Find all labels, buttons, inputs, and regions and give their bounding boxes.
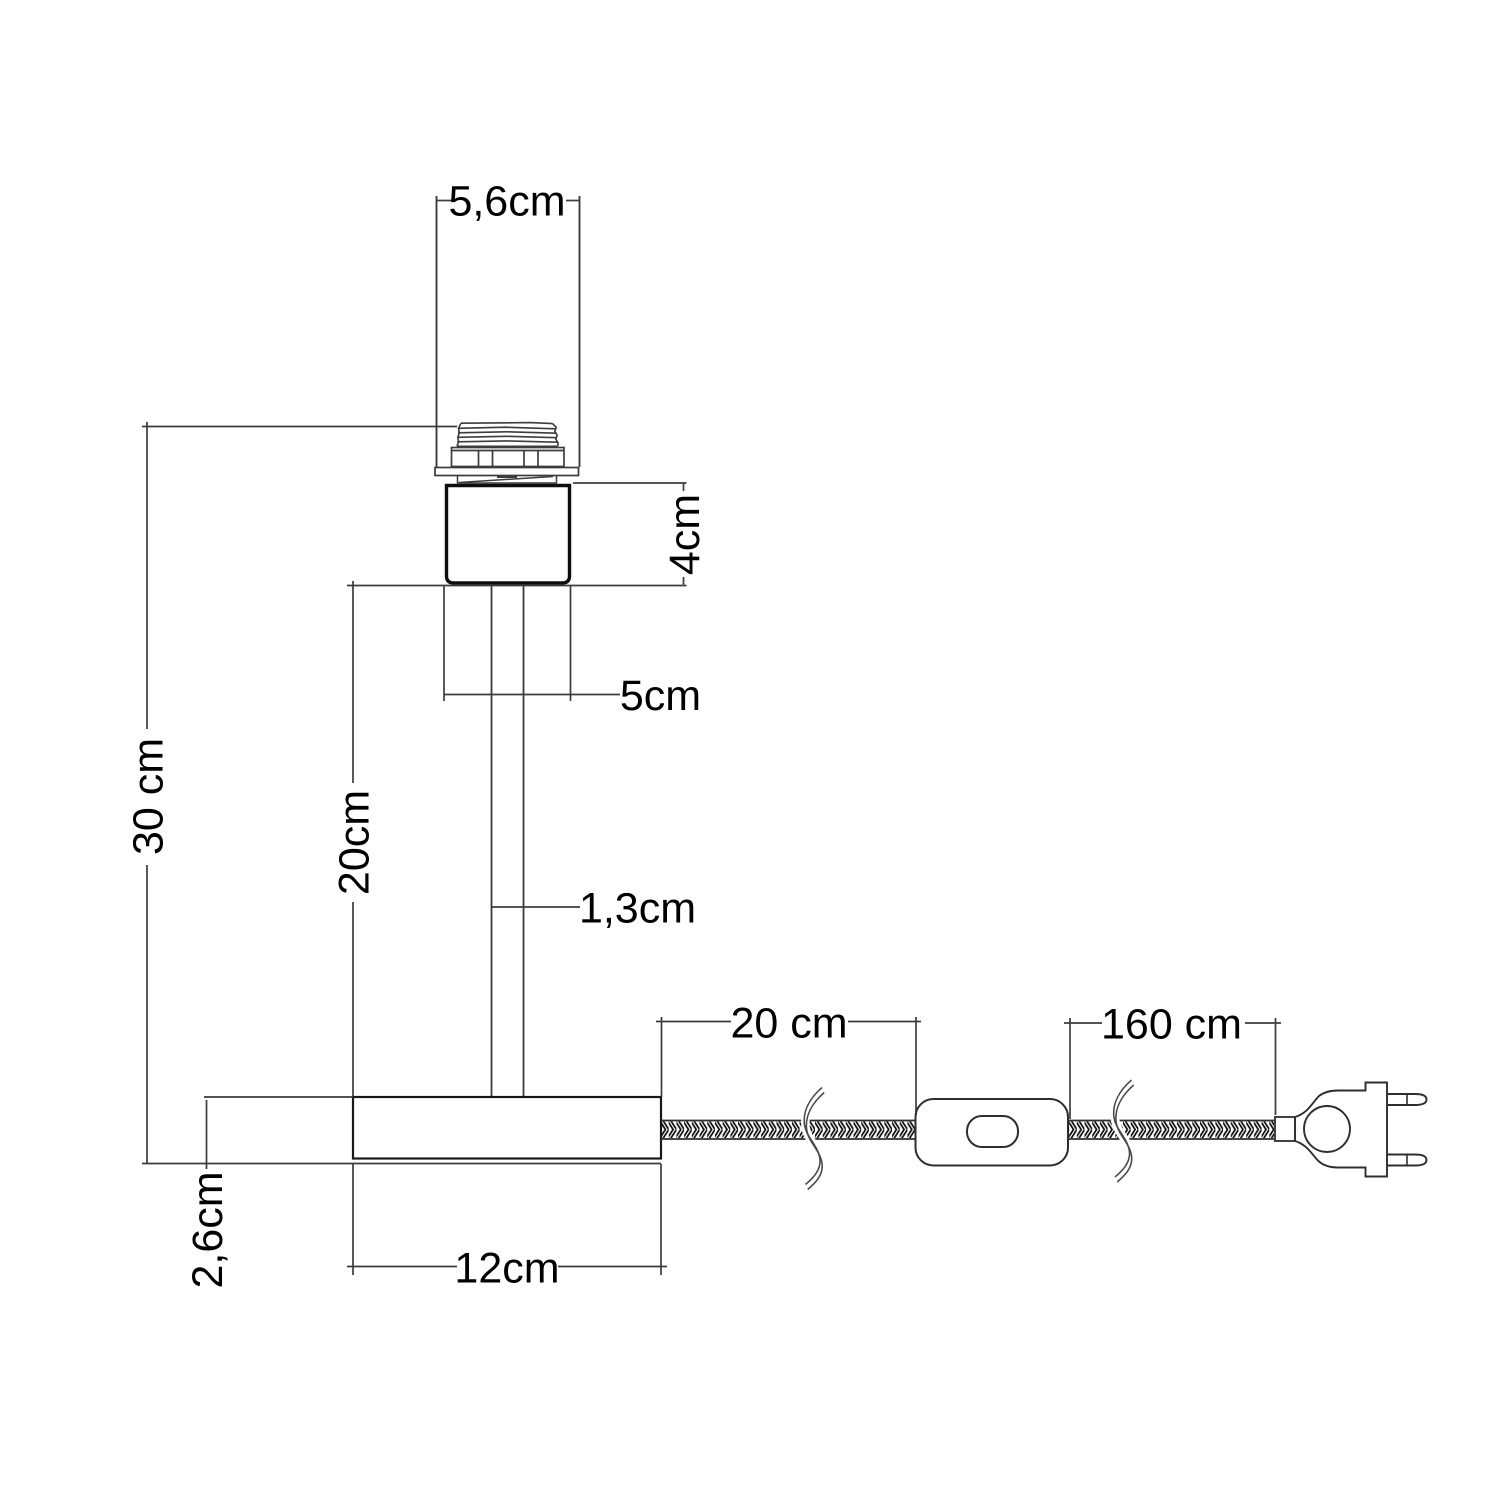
svg-text:160 cm: 160 cm (1101, 1001, 1242, 1049)
svg-text:4cm: 4cm (661, 494, 709, 575)
svg-text:1,3cm: 1,3cm (579, 885, 696, 933)
svg-text:20 cm: 20 cm (730, 1000, 847, 1048)
svg-text:12cm: 12cm (454, 1245, 559, 1293)
svg-text:2,6cm: 2,6cm (184, 1171, 232, 1288)
svg-text:5cm: 5cm (620, 672, 701, 720)
svg-text:20cm: 20cm (331, 790, 379, 895)
svg-text:5,6cm: 5,6cm (448, 178, 565, 226)
svg-text:30 cm: 30 cm (125, 738, 173, 855)
